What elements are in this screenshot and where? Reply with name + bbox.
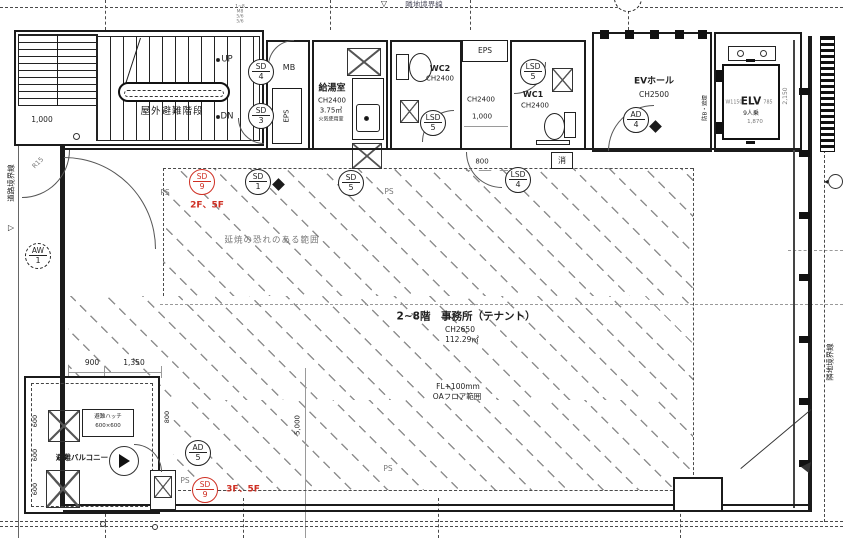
wc2-basin <box>400 100 419 123</box>
door-marker-sd1: SD1 <box>245 169 271 195</box>
office-area: 112.29㎡ <box>445 336 479 344</box>
wc1-basin <box>552 68 573 92</box>
balcony-dim-1350: 1,350 <box>123 359 144 367</box>
bottom-dashed <box>218 490 693 491</box>
center-line-h <box>160 304 843 305</box>
hatch-size: 600×600 <box>95 424 121 430</box>
fire-spread-boundary-right <box>693 168 694 490</box>
stair-note-4: 5/6 <box>236 21 243 26</box>
door-marker-sd5: SD5 <box>338 170 364 196</box>
wc2-toilet-tank <box>396 54 409 80</box>
grid-line <box>105 0 106 30</box>
balcony-dim-900: 900 <box>85 359 99 367</box>
door-pivot <box>73 133 80 140</box>
office-entrance-door-arc <box>64 157 156 249</box>
hatch-label: 避難ハッチ <box>94 415 122 421</box>
red-note-2f5f: 2F、5F <box>190 201 224 210</box>
ev-hall-label: EVホール <box>634 77 674 86</box>
dim-line <box>464 126 508 127</box>
mullion-tick <box>799 274 810 281</box>
door-marker-lsd5-wc2: LSD5 <box>420 110 446 136</box>
kitchen-label: 給湯室 <box>318 84 345 93</box>
door-marker-lsd4: LSD4 <box>505 167 531 193</box>
extinguisher-label: 消 <box>558 157 566 165</box>
vent-marker-ad5: AD5 <box>185 440 211 466</box>
red-note-3f5f: 3F、5F <box>226 485 260 494</box>
fire-spread-boundary-top <box>163 168 693 169</box>
stair-node <box>216 58 220 62</box>
kitchen-note: 火気使用室 <box>318 117 343 122</box>
sink-drain-icon <box>364 116 369 121</box>
stair-node <box>216 115 220 119</box>
vent-marker-ad4: AD4 <box>623 107 649 133</box>
ev-hall-ch: CH2500 <box>639 91 669 99</box>
door-marker-lsd5-wc1: LSD5 <box>520 59 546 85</box>
elv-label: ELV <box>741 96 762 107</box>
kitchen-duct-icon <box>347 48 381 76</box>
eps-top-label: EPS <box>478 47 492 55</box>
ps-label-4: PS <box>383 465 392 473</box>
center-line-v <box>305 368 306 538</box>
elv-smoke-label: 防B・遮煙 <box>703 95 709 121</box>
center-line-h2 <box>788 250 843 251</box>
eps-side-label: EPS <box>284 109 291 122</box>
neighbour-wall-hatch <box>820 36 835 152</box>
door-marker-sd3: SD3 <box>248 103 274 129</box>
dim-tick <box>161 366 162 378</box>
stair-up-label: UP <box>221 56 232 65</box>
section-arrow-icon: ◂ <box>824 178 828 186</box>
mullion-tick <box>799 88 810 95</box>
section-mark <box>828 174 843 189</box>
road-boundary-triangle-icon: ▽ <box>7 225 15 231</box>
down-arrow-icon <box>119 454 130 468</box>
corridor-dim-1000: 1,000 <box>472 113 492 120</box>
kitchen-area: 3.75㎡ <box>320 107 343 114</box>
elv-dim-2150: 2,150 <box>783 87 789 104</box>
elv-dim-1870: 1,870 <box>747 120 763 126</box>
site-boundary-bottom-1 <box>0 521 843 522</box>
floor-plan-drawing: ▽ 隣地境界線 ▽ 道路境界線 隣地境界線 ◂ 屋外避難階段 UP DN 1~8… <box>0 0 843 538</box>
mullion-tick <box>799 212 810 219</box>
office-ch: CH2650 <box>445 326 475 334</box>
fire-spread-hatch-1 <box>163 168 693 296</box>
wc1-ch: CH2400 <box>521 102 549 109</box>
adjacent-boundary-top-label: 隣地境界線 <box>405 1 443 9</box>
adjacent-boundary-right-label: 隣地境界線 <box>826 343 834 381</box>
window-tick <box>650 30 659 39</box>
office-title: 2~8階 事務所（テナント） <box>397 311 536 322</box>
top-band-bottom-wall <box>65 148 802 150</box>
door-marker-sd4: SD4 <box>248 59 274 85</box>
office-bottom-wall-2 <box>63 510 812 512</box>
elv-capacity: 9人乗 <box>743 111 759 117</box>
ps-shaft-duct <box>154 476 172 498</box>
office-dim-5000: 5,000 <box>295 415 302 435</box>
window-tick <box>600 30 609 39</box>
escape-ladder-box-lower <box>46 470 80 508</box>
stair-handrail <box>118 82 230 102</box>
grid-bubble <box>614 0 642 12</box>
fire-spread-hatch-3 <box>173 400 693 490</box>
curtain-wall-outer-line <box>808 36 812 510</box>
window-tick <box>675 30 684 39</box>
stair-dim-1000: 1,000 <box>31 116 52 124</box>
road-boundary-label: 道路境界線 <box>7 164 15 202</box>
elv-door-jamb <box>716 122 723 134</box>
corridor-ch: CH2400 <box>467 96 495 103</box>
balcony-dim-800: 800 <box>164 411 171 423</box>
wc1-toilet-tank <box>564 112 576 138</box>
kitchen-ch: CH2400 <box>318 97 346 104</box>
window-tick <box>698 30 707 39</box>
office-oa-range: OAフロア範囲 <box>433 393 481 401</box>
boundary-point <box>100 521 106 527</box>
mb-label: MB <box>283 64 295 72</box>
site-boundary-right <box>824 150 825 522</box>
wc2-ch: CH2400 <box>426 75 454 82</box>
grid-line <box>330 0 331 30</box>
wc1-step <box>536 140 570 145</box>
door-marker-sd9-top: SD9 <box>189 169 215 195</box>
fire-spread-hatch-2 <box>68 296 693 400</box>
corridor-dim-800: 800 <box>475 158 488 165</box>
balcony-dim-600a: 600 <box>32 415 39 427</box>
bottom-wall-notch <box>673 477 723 510</box>
stair-divider <box>57 34 58 106</box>
balcony-label: 避難バルコニー <box>56 454 108 462</box>
grid-line <box>470 0 471 30</box>
ps-label-1: PS <box>160 189 169 197</box>
ps-label-2: PS <box>384 188 393 196</box>
elv-depth-label: 785 <box>763 100 772 105</box>
elv-guide-mark <box>746 141 755 144</box>
site-boundary-bottom-2 <box>0 526 843 527</box>
mullion-tick <box>799 398 810 405</box>
fire-spread-label: 延焼の恐れのある範囲 <box>224 237 319 246</box>
wc1-label: WC1 <box>523 91 543 99</box>
elv-machine-dot <box>760 50 767 57</box>
balcony-dim-600c: 600 <box>32 483 39 495</box>
mullion-tick <box>799 150 810 157</box>
balcony-dim-600b: 600 <box>32 449 39 461</box>
stair-label: 屋外避難階段 <box>140 107 203 117</box>
window-tick <box>625 30 634 39</box>
escape-ladder-box-upper <box>48 410 80 442</box>
ps-label-3: PS <box>180 477 189 485</box>
curtain-wall-inner-line <box>793 40 795 508</box>
window-marker-aw1: AW1 <box>25 243 51 269</box>
elv-guide-mark <box>746 59 755 62</box>
wc1-toilet-bowl <box>544 113 565 140</box>
boundary-point <box>152 524 158 530</box>
stair-upper-flight <box>18 34 98 106</box>
dim-line <box>68 372 162 373</box>
elv-machine-dot <box>737 50 744 57</box>
door-marker-sd9-bottom: SD9 <box>192 477 218 503</box>
wc2-label: WC2 <box>430 65 450 73</box>
elv-door-jamb <box>716 70 723 82</box>
mullion-tick <box>799 336 810 343</box>
stair-dn-label: DN <box>221 113 234 122</box>
boundary-triangle-icon: ▽ <box>381 0 387 8</box>
kitchen-hatch-box <box>352 143 382 169</box>
office-floor-level: FL+100mm <box>436 383 480 391</box>
